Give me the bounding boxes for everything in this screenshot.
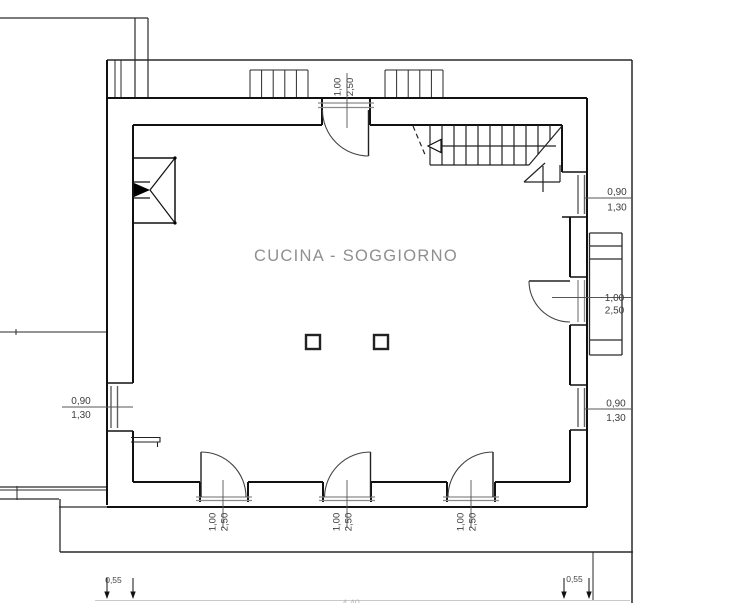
dim-label: 0,55 bbox=[566, 574, 583, 584]
dim-label: 1,00 bbox=[208, 513, 219, 532]
dim-label: 0,90 bbox=[606, 399, 626, 410]
adjacent-structure-left bbox=[0, 329, 107, 500]
wall-niche-detail bbox=[131, 438, 160, 448]
door-swing-arc bbox=[448, 452, 493, 497]
floor-plan-drawing: CUCINA - SOGGIORNO 1,002,500,901,301,002… bbox=[0, 0, 730, 603]
room-label: CUCINA - SOGGIORNO bbox=[254, 247, 458, 265]
door-top bbox=[318, 98, 374, 156]
doors-bottom bbox=[196, 452, 499, 502]
door-bottom-middle bbox=[325, 452, 371, 497]
door-swing-arc bbox=[325, 452, 371, 497]
door-bottom-left bbox=[201, 452, 246, 497]
dim-label: 1,00 bbox=[333, 78, 344, 97]
stair-direction-dashed bbox=[413, 126, 426, 157]
dimension-lines bbox=[62, 73, 633, 528]
dim-label: 0,90 bbox=[71, 396, 91, 407]
dim-label: 4,40 bbox=[342, 598, 360, 603]
dim-label: 1,30 bbox=[71, 410, 91, 421]
columns bbox=[306, 335, 388, 349]
dim-label: 2,50 bbox=[605, 306, 625, 317]
dim-label: 1,30 bbox=[606, 413, 626, 424]
site-boundary bbox=[107, 60, 632, 603]
floor-plan-page: CUCINA - SOGGIORNO 1,002,500,901,301,002… bbox=[0, 0, 730, 603]
dim-label: 2,50 bbox=[468, 513, 479, 532]
door-swing-arc bbox=[529, 281, 570, 322]
dim-label: 1,30 bbox=[607, 203, 627, 214]
dim-label: 2,50 bbox=[344, 513, 355, 532]
dim-label: 0,55 bbox=[105, 575, 122, 585]
fireplace-firebox bbox=[134, 183, 150, 197]
chimney bbox=[0, 18, 148, 98]
dim-label: 1,00 bbox=[605, 293, 625, 304]
wall-thickness-dimensions bbox=[104, 578, 591, 599]
dim-label: 1,00 bbox=[456, 513, 467, 532]
dim-label: 2,50 bbox=[345, 78, 356, 97]
window-right-bottom bbox=[570, 385, 587, 430]
porch-steps-top bbox=[115, 60, 443, 98]
column-1 bbox=[306, 335, 320, 349]
dimension-labels: 1,002,500,901,301,002,500,901,300,901,30… bbox=[71, 78, 627, 603]
dim-label: 1,00 bbox=[332, 513, 343, 532]
dim-label: 0,90 bbox=[607, 187, 627, 198]
window-right-top bbox=[562, 172, 587, 217]
door-swing-arc bbox=[323, 110, 369, 156]
staircase bbox=[413, 125, 562, 192]
door-right bbox=[529, 277, 587, 325]
door-bottom-right bbox=[448, 452, 493, 497]
door-swing-arc bbox=[201, 452, 246, 497]
column-2 bbox=[374, 335, 388, 349]
fireplace bbox=[133, 156, 177, 224]
dim-label: 2,50 bbox=[220, 513, 231, 532]
